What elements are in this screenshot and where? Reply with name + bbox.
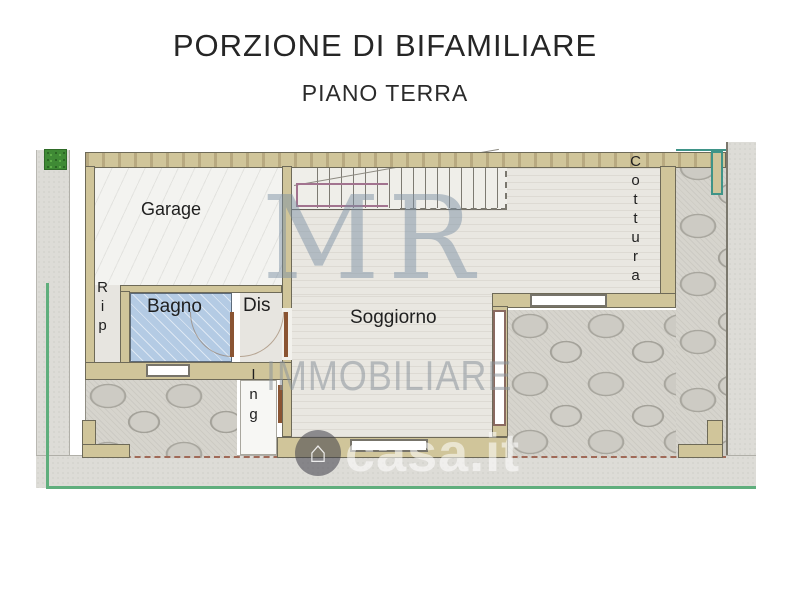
entry-door (278, 385, 282, 423)
floor-plan-page: PORZIONE DI BIFAMILIARE PIANO TERRA (0, 0, 800, 600)
hall-door (284, 312, 288, 357)
page-subtitle: PIANO TERRA (0, 80, 770, 107)
room-label-dis: Dis (243, 295, 270, 317)
patio-right (676, 152, 726, 458)
wall-left (85, 166, 95, 372)
walkway-bottom (36, 455, 756, 488)
kitchen-window (530, 294, 607, 307)
fence-line-top-right (676, 149, 726, 151)
walkway-right (726, 142, 756, 488)
room-label-garage: Garage (141, 199, 201, 220)
wall-bagno-left (120, 291, 130, 364)
hedge (44, 149, 67, 170)
wall-kitchen-right (660, 166, 676, 302)
room-label-soggiorno: Soggiorno (350, 307, 437, 329)
wall-garage-living-divider (282, 166, 292, 437)
staircase-dashed-edge (400, 208, 507, 210)
garden-wall-bottom-right-horizontal (678, 444, 723, 458)
pier-top-right (711, 151, 723, 195)
room-label-ing: Ing (245, 366, 262, 426)
walkway-left (36, 150, 70, 488)
living-room-window (350, 439, 428, 452)
bathroom-window (146, 364, 190, 377)
garage-floor (95, 168, 282, 285)
patio-bottom-right (508, 310, 676, 458)
room-label-rip: Rip (94, 279, 111, 336)
boundary-line-bottom (46, 486, 756, 489)
wall-bagno-top (120, 285, 282, 293)
boundary-line-left (46, 283, 49, 488)
room-label-cottura: Cottura (627, 153, 644, 286)
bathroom-door (230, 312, 234, 357)
living-room-glass-door (493, 310, 506, 426)
garden-wall-bottom-left-horizontal (82, 444, 130, 458)
page-title: PORZIONE DI BIFAMILIARE (0, 28, 770, 64)
staircase-railing (296, 183, 388, 207)
room-label-bagno: Bagno (147, 296, 202, 318)
